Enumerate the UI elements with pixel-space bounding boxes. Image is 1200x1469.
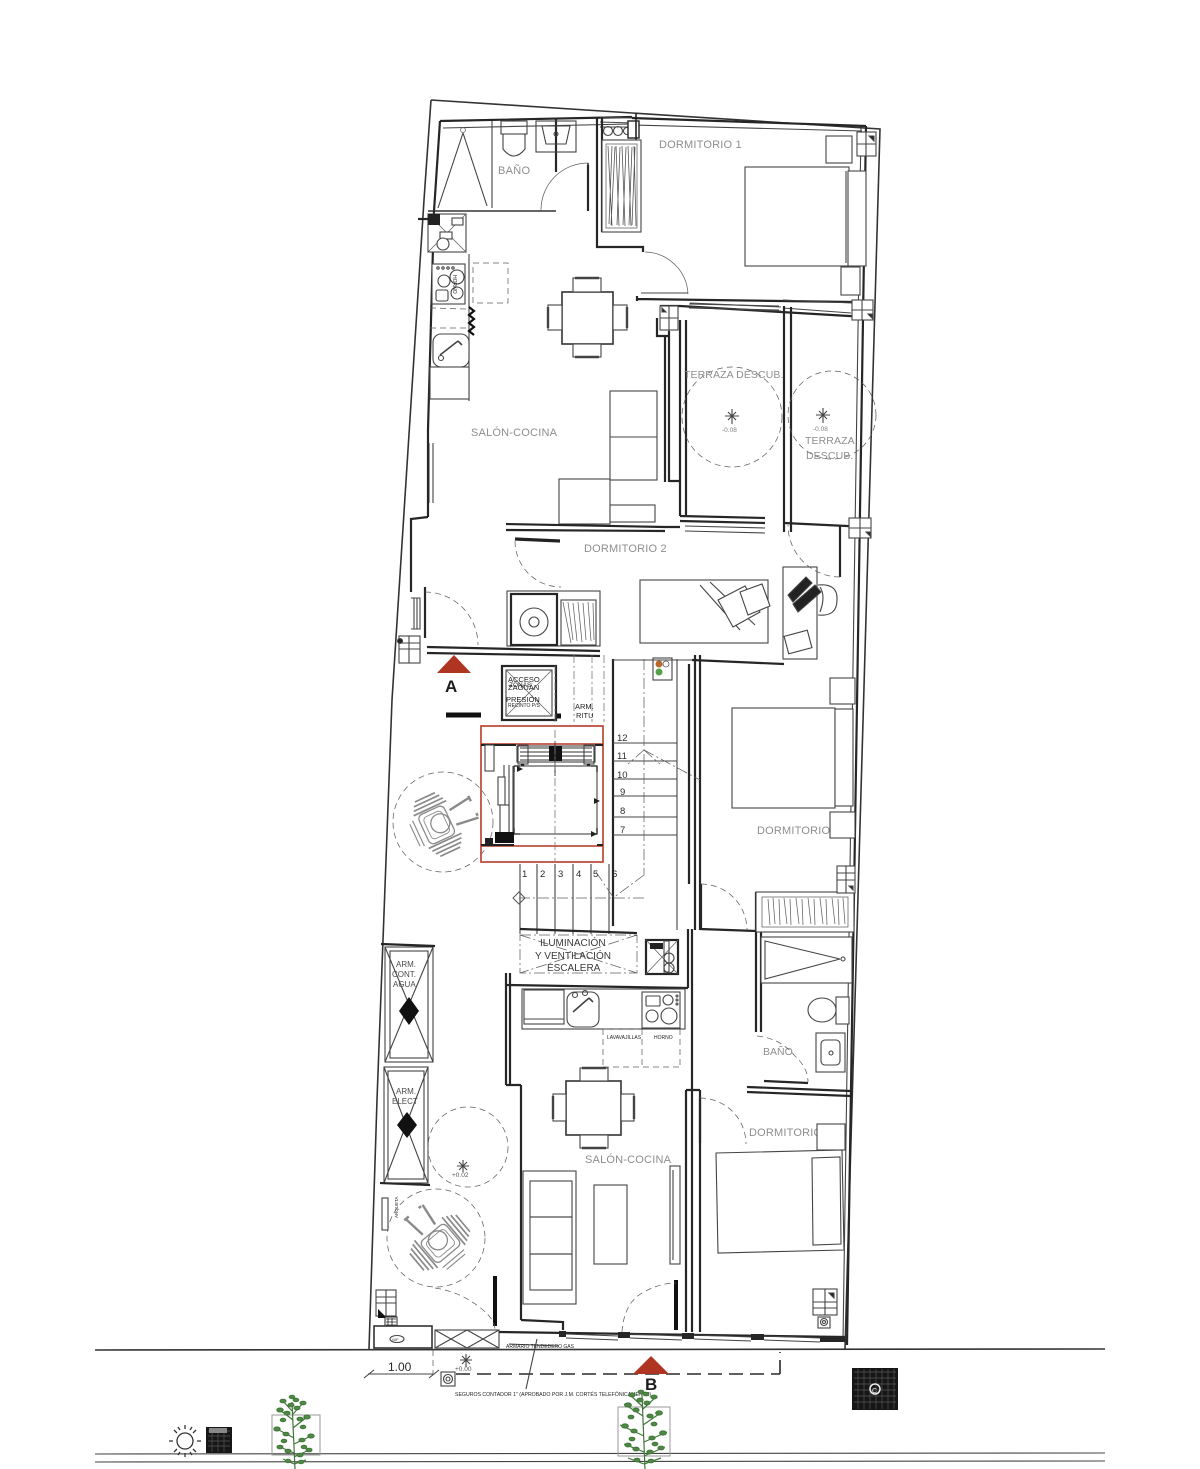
- svg-text:ARM.: ARM.: [396, 960, 416, 969]
- svg-text:3: 3: [558, 869, 563, 880]
- svg-text:HORNO: HORNO: [654, 1035, 673, 1041]
- svg-text:ILUMINACIÓN: ILUMINACIÓN: [540, 936, 606, 949]
- svg-text:CONT.: CONT.: [392, 970, 416, 979]
- svg-text:HORNO: HORNO: [451, 275, 457, 294]
- svg-text:TERRAZA DESCUB.: TERRAZA DESCUB.: [684, 369, 784, 381]
- svg-text:1: 1: [522, 869, 527, 880]
- svg-text:AGUA: AGUA: [393, 980, 416, 989]
- svg-text:TERRAZA: TERRAZA: [805, 435, 855, 447]
- svg-text:SEGUROS CONTADOR 1" (APROBADO: SEGUROS CONTADOR 1" (APROBADO POR J.M. C…: [455, 1391, 651, 1398]
- svg-text:DESCUB.: DESCUB.: [806, 450, 853, 462]
- svg-text:ZONAS: ZONAS: [509, 682, 532, 689]
- svg-text:DORMITORIO 2: DORMITORIO 2: [584, 543, 667, 555]
- svg-text:ARM.: ARM.: [575, 702, 594, 711]
- svg-text:11: 11: [617, 751, 627, 762]
- svg-text:10: 10: [617, 770, 628, 781]
- svg-text:+0.00: +0.00: [455, 1366, 472, 1373]
- svg-text:DORMITORIO: DORMITORIO: [757, 825, 831, 837]
- svg-text:1.00: 1.00: [388, 1360, 412, 1374]
- svg-text:Y VENTILACIÓN: Y VENTILACIÓN: [535, 949, 611, 962]
- svg-text:ESCALERA: ESCALERA: [547, 963, 601, 974]
- svg-text:9: 9: [620, 787, 625, 798]
- svg-text:-0.08: -0.08: [813, 426, 828, 433]
- svg-text:C: C: [872, 1388, 877, 1395]
- svg-text:7: 7: [620, 825, 625, 836]
- svg-text:GIF: GIF: [392, 1337, 399, 1342]
- svg-text:LAVAVAJILLAS: LAVAVAJILLAS: [607, 1035, 642, 1041]
- svg-text:RECINTO P/S: RECINTO P/S: [508, 703, 541, 709]
- svg-text:SALÓN-COCINA: SALÓN-COCINA: [585, 1153, 672, 1166]
- svg-text:ELECT: ELECT: [392, 1097, 418, 1106]
- svg-text:ARMARIO TENDEDERO GAS: ARMARIO TENDEDERO GAS: [506, 1344, 575, 1350]
- svg-text:SALÓN-COCINA: SALÓN-COCINA: [471, 426, 558, 439]
- svg-text:DORMITORIO 1: DORMITORIO 1: [659, 139, 742, 151]
- svg-text:ARQUETA: ARQUETA: [394, 1197, 399, 1218]
- svg-text:4: 4: [576, 869, 581, 880]
- svg-text:+0.02: +0.02: [452, 1172, 469, 1179]
- svg-text:BAÑO: BAÑO: [498, 164, 531, 177]
- svg-text:ARM.: ARM.: [396, 1087, 416, 1096]
- svg-text:A: A: [445, 677, 457, 696]
- svg-text:BAÑO: BAÑO: [763, 1045, 793, 1058]
- svg-text:-0.08: -0.08: [722, 427, 737, 434]
- svg-text:12: 12: [617, 733, 628, 744]
- svg-text:6: 6: [612, 869, 617, 880]
- svg-text:8: 8: [620, 806, 625, 817]
- svg-text:RITU: RITU: [576, 711, 594, 720]
- svg-text:2: 2: [540, 869, 545, 880]
